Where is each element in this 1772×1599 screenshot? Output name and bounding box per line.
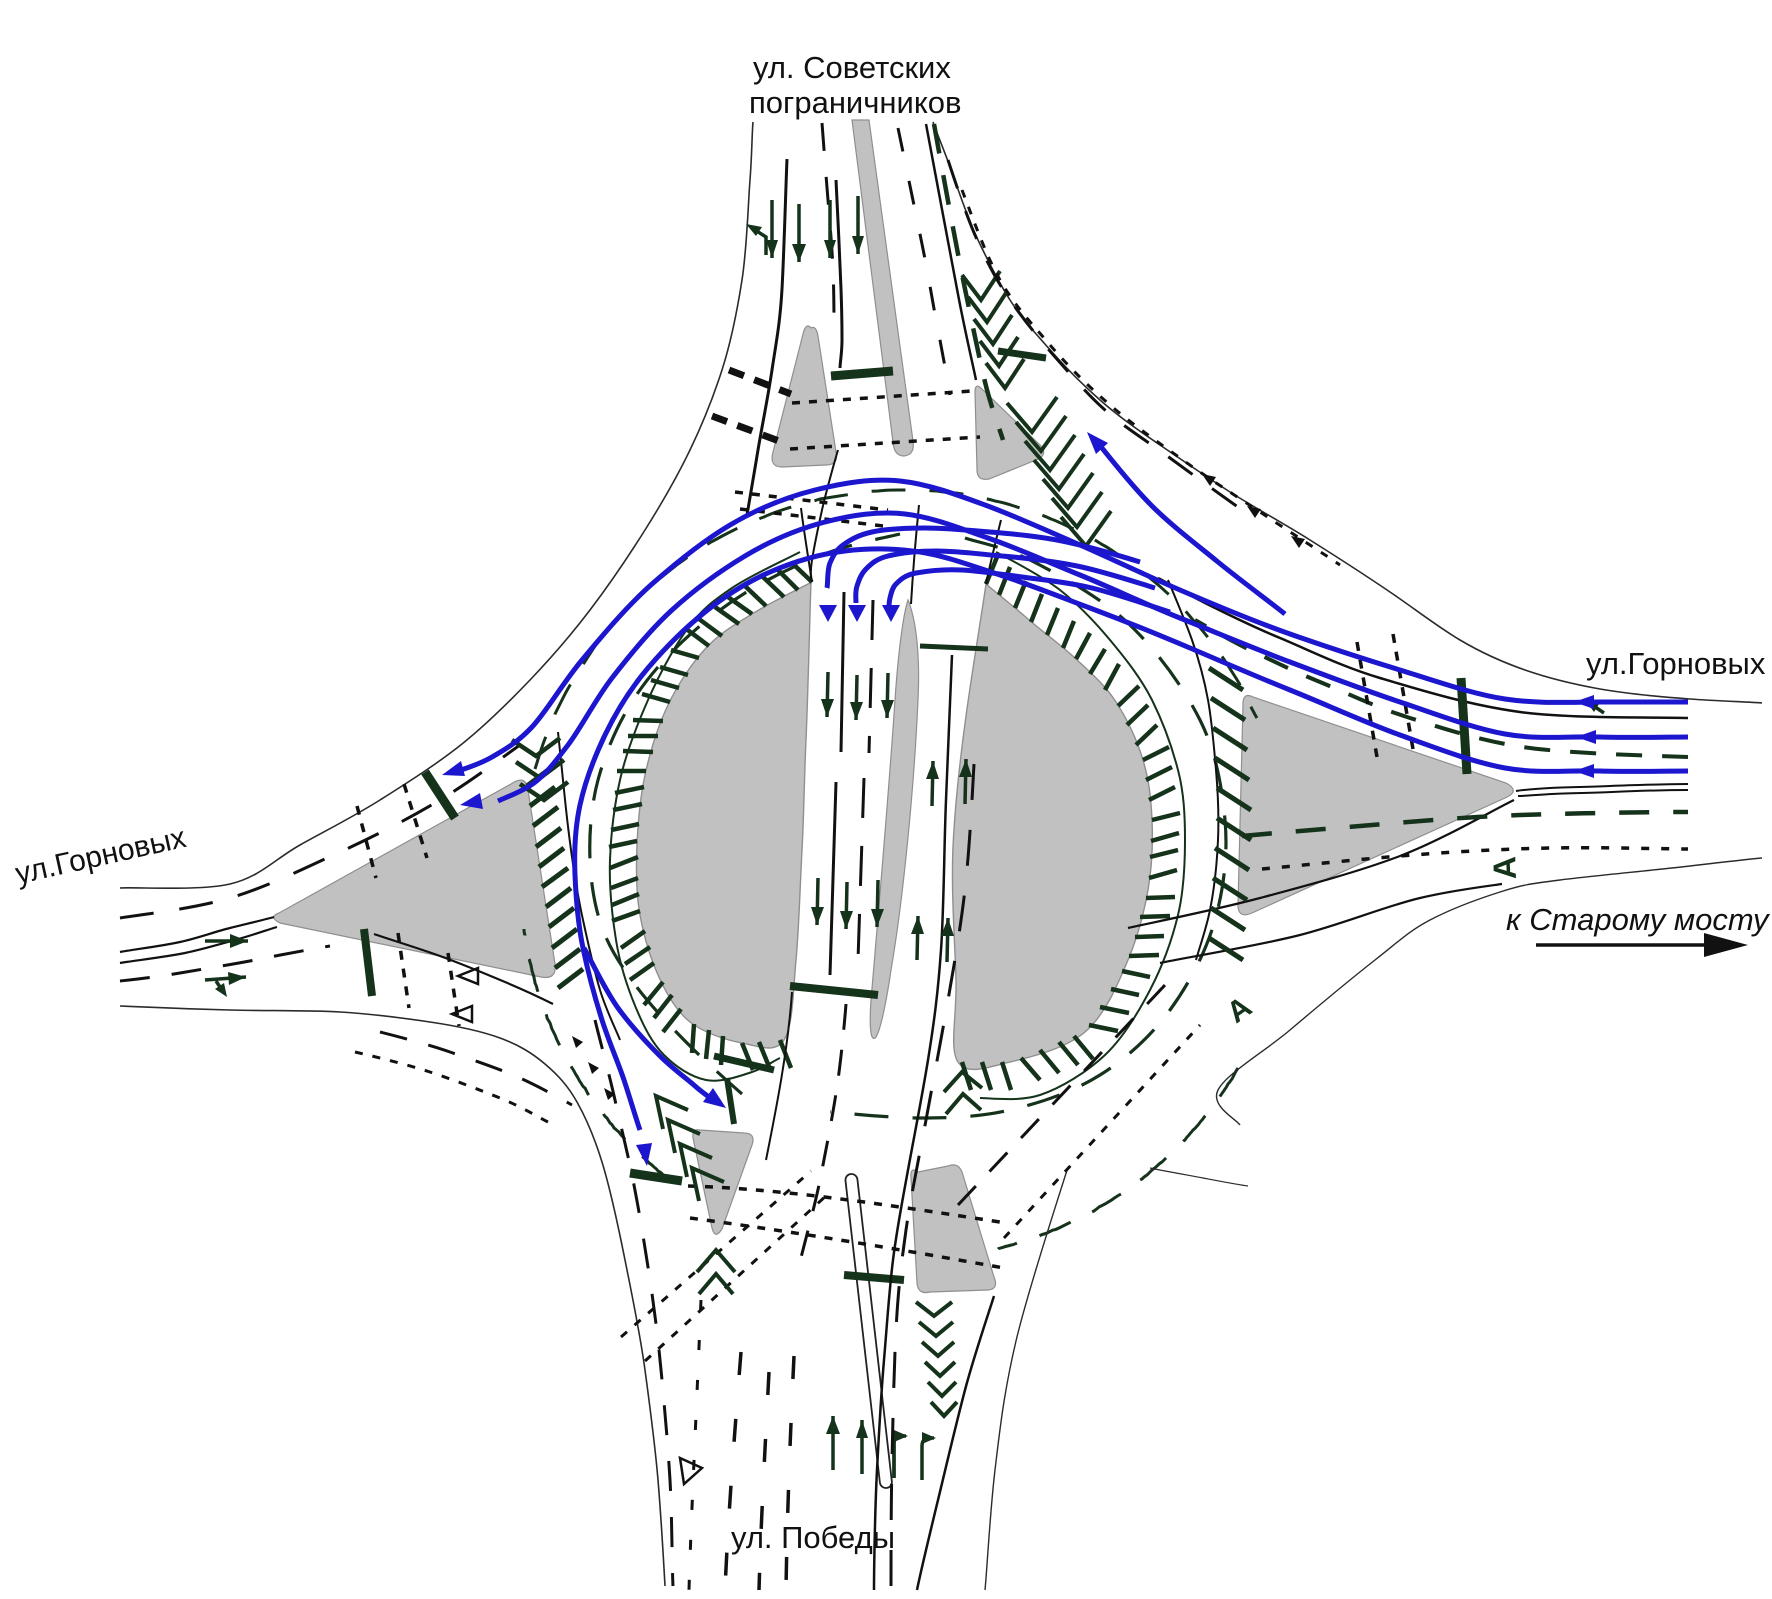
svg-text:пограничников: пограничников bbox=[749, 85, 961, 120]
svg-text:А: А bbox=[1486, 856, 1523, 880]
svg-text:ул. Победы: ул. Победы bbox=[731, 1520, 895, 1555]
svg-text:к Старому мосту: к Старому мосту bbox=[1506, 902, 1771, 937]
svg-text:ул.Горновых: ул.Горновых bbox=[1586, 646, 1766, 681]
svg-text:ул. Советских: ул. Советских bbox=[753, 50, 951, 85]
